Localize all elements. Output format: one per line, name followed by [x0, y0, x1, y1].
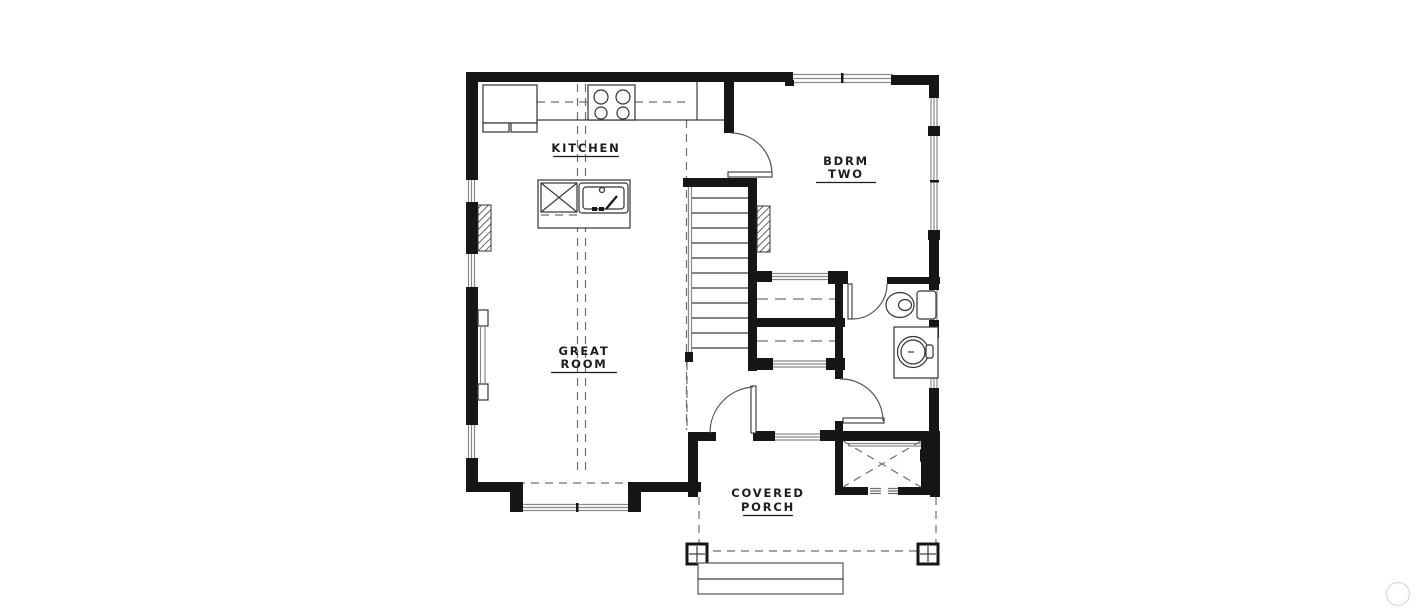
- bathroom: [835, 277, 940, 423]
- bedroom-door: [724, 82, 772, 177]
- stair-chimney-hatch: [757, 206, 770, 252]
- covered-porch-label-line1: COVERED: [731, 486, 805, 500]
- stair-treads: [691, 198, 748, 348]
- island-sink: [579, 183, 628, 213]
- entry-steps: [698, 563, 843, 594]
- fireplace: [478, 310, 488, 400]
- window-top-bedroom: [785, 73, 893, 86]
- window-left-2: [469, 254, 475, 287]
- watermark-circle: [1387, 583, 1410, 606]
- kitchen-label: KITCHEN: [551, 141, 620, 155]
- newel-post: [685, 352, 693, 362]
- range-cooktop: [588, 85, 635, 120]
- porch-column-left: [687, 544, 707, 564]
- closet-door-dashed-opening: [870, 489, 898, 494]
- left-wall: [466, 72, 478, 492]
- toilet: [886, 291, 936, 319]
- kitchen-island: [538, 180, 630, 228]
- front-entry-door: [710, 386, 756, 433]
- closet-x-dashed: [843, 441, 921, 487]
- floor-plan-drawing: KITCHEN BDRM TWO GREAT ROOM COVERED PORC…: [0, 0, 1416, 616]
- great-room-bay-window: [466, 482, 701, 512]
- covered-porch: [687, 497, 938, 594]
- bedroom-closet: [755, 271, 848, 327]
- window-right-1: [931, 98, 937, 126]
- bedroom-two-label-line1: BDRM: [823, 154, 869, 168]
- bathroom-door: [848, 284, 887, 319]
- faucet-icon: [600, 188, 605, 193]
- floor-plan-page: KITCHEN BDRM TWO GREAT ROOM COVERED PORC…: [0, 0, 1416, 616]
- refrigerator: [483, 85, 537, 132]
- faucet-icon: [926, 345, 933, 358]
- porch-slab-dashed: [699, 497, 936, 551]
- vanity-sink: [894, 327, 938, 378]
- entry-sidelite-window: [775, 434, 822, 440]
- window-left-1: [469, 180, 475, 202]
- window-left-3: [469, 425, 475, 458]
- window-right-2: [930, 136, 939, 230]
- kitchen-counters: [483, 82, 724, 132]
- great-room-label-line1: GREAT: [558, 344, 609, 358]
- hall-door: [840, 379, 884, 423]
- covered-porch-label-line2: PORCH: [741, 500, 795, 514]
- great-room-label-line2: ROOM: [560, 357, 607, 371]
- entry-storage-closet: [835, 421, 930, 495]
- porch-column-right: [918, 544, 938, 564]
- dishwasher: [541, 183, 577, 215]
- chimney-hatch: [478, 205, 491, 251]
- bedroom-two-label-line2: TWO: [828, 167, 864, 181]
